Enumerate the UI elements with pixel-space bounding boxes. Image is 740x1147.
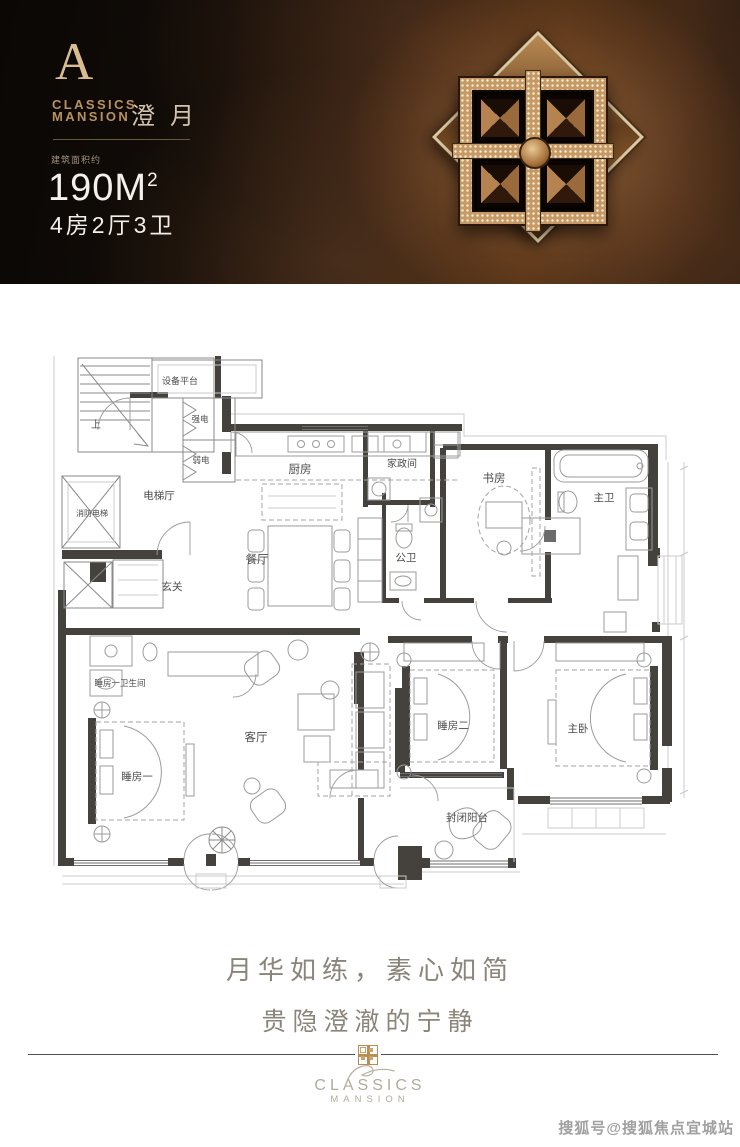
bedroom1-fixtures	[88, 636, 258, 842]
room-label-master-bedroom: 主卧	[568, 722, 589, 735]
hero-header: A CLASSICS MANSION 澄月 建筑面积约 190M2 4房2厅3卫	[0, 0, 740, 284]
tagline-line1: 月华如练，素心如简	[0, 950, 740, 987]
layout-text: 4房2厅3卫	[50, 206, 175, 240]
emblem-gem	[474, 158, 526, 210]
room-label-strong-electric: 强电	[191, 414, 209, 424]
utility-bath-fixtures	[358, 432, 442, 602]
tagline-line2: 贵隐澄澈的宁静	[0, 1002, 740, 1038]
brand-line2: MANSION	[52, 111, 137, 123]
brand-wordmark: CLASSICS MANSION	[52, 99, 137, 123]
room-label-elevator-hall: 电梯厅	[143, 489, 175, 502]
unit-letter: A	[55, 36, 93, 89]
room-label-kitchen: 厨房	[289, 463, 312, 476]
room-label-stairs-up: 上	[91, 419, 101, 431]
master-bath-fixtures	[522, 450, 652, 632]
room-label-foyer: 玄关	[162, 580, 183, 593]
tagline-block: 月华如练，素心如简 贵隐澄澈的宁静	[0, 950, 740, 1038]
footer-logo: CLASSICS MANSION	[0, 1062, 740, 1105]
room-label-dining: 餐厅	[246, 552, 269, 566]
gold-divider	[53, 139, 190, 140]
emblem-gem	[540, 92, 592, 144]
area-value: 190M2	[48, 161, 159, 208]
poster-page: A CLASSICS MANSION 澄月 建筑面积约 190M2 4房2厅3卫	[0, 0, 740, 1147]
room-label-weak-electric: 弱电	[192, 455, 210, 465]
unit-name-cn: 澄月	[131, 96, 209, 131]
room-label-living: 客厅	[245, 730, 268, 744]
room-label-guest-bath: 公卫	[396, 552, 417, 564]
master-bedroom-fixtures	[548, 643, 658, 783]
room-label-housekeeping: 家政间	[387, 457, 417, 470]
emblem-frame	[458, 76, 608, 226]
room-label-fire-elevator: 消防电梯	[76, 508, 108, 518]
room-label-study: 书房	[483, 472, 506, 485]
kitchen-dining-fixtures	[236, 427, 460, 611]
bedroom2-fixtures	[397, 643, 494, 779]
room-label-bedroom1: 睡房一	[121, 770, 153, 783]
emblem-gem	[540, 158, 592, 210]
room-label-bedroom1-bath: 睡房一卫生间	[94, 678, 145, 688]
room-label-master-bath: 主卫	[594, 492, 615, 504]
jewel-emblem-icon	[430, 28, 640, 240]
outer-frame-lines	[54, 356, 688, 884]
footer-brand-line2: MANSION	[0, 1094, 740, 1105]
watermark: 搜狐号@搜狐焦点宜城站	[558, 1117, 734, 1138]
emblem-gem	[474, 92, 526, 144]
floor-plan: 设备平台 上 强电 弱电 消防电梯 电梯厅 厨房 家政间 书房 主卫 餐厅 公卫…	[0, 345, 740, 910]
emblem-center-jewel	[519, 137, 551, 169]
room-label-equipment-platform: 设备平台	[162, 375, 198, 386]
room-label-enclosed-balcony: 封闭阳台	[446, 811, 488, 824]
room-label-bedroom2: 睡房二	[437, 719, 469, 732]
footer-brand-line1: CLASSICS	[0, 1078, 740, 1094]
